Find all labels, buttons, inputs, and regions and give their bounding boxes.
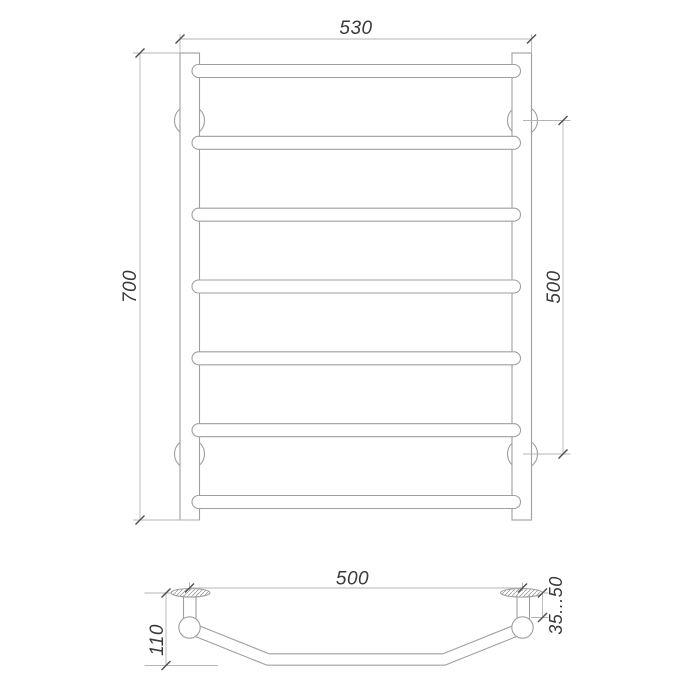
rail-bar [192, 208, 521, 221]
ball-joint-left [179, 617, 200, 638]
rail-bar [192, 352, 521, 365]
rail-bar [192, 136, 521, 149]
dim-label-mount-width: 500 [336, 569, 369, 590]
rail-bar [192, 424, 521, 437]
technical-drawing: 530 700 500 500 110 35...50 [0, 0, 700, 700]
rail-bar [192, 65, 521, 78]
rail-bar [192, 496, 521, 509]
wall-plate-left [171, 589, 210, 598]
ball-joint-right [512, 617, 533, 638]
drawing-canvas: 530 700 500 500 110 35...50 [0, 0, 700, 700]
dim-label-depth: 110 [147, 624, 168, 656]
dim-label-overall-width: 530 [339, 18, 372, 39]
rail-bar [192, 280, 521, 293]
dim-label-mount-spacing: 500 [544, 270, 565, 303]
dim-label-wall-clearance: 35...50 [546, 576, 566, 635]
dim-label-overall-height: 700 [120, 270, 141, 303]
front-view [175, 53, 538, 520]
top-view [171, 589, 543, 660]
